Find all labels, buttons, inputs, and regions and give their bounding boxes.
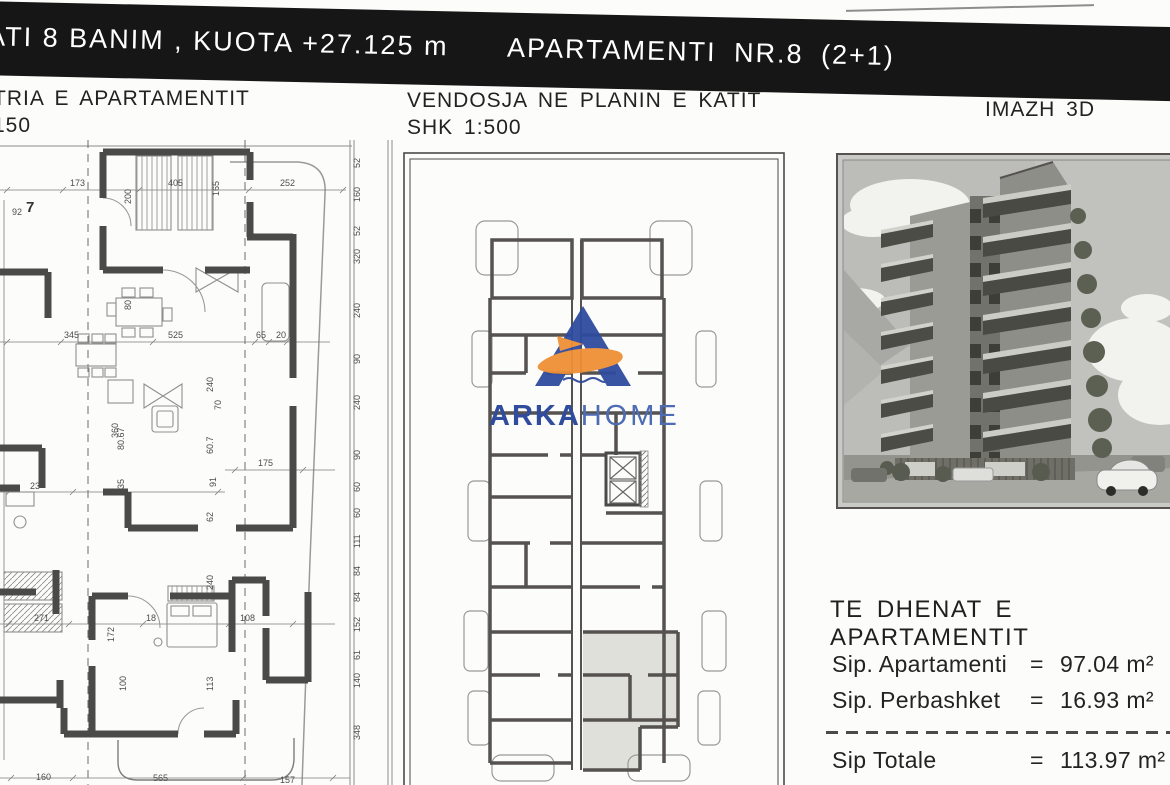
dimension-label: 152 — [352, 617, 362, 632]
dimension-label: 240 — [352, 395, 362, 410]
dimension-label: 240 — [205, 575, 215, 590]
dimension-label: 345 — [64, 330, 79, 340]
dimension-label: 100 — [118, 676, 128, 691]
detail-value: 97.04 m² — [1060, 651, 1154, 678]
parked-car-dark — [851, 468, 887, 482]
dimension-label: 52 — [352, 158, 362, 168]
dimension-label: 20 — [276, 330, 286, 340]
logo-a-shape — [535, 306, 631, 386]
dimension-lines — [0, 187, 350, 781]
dimension-labels: 1734052529220016534552565208024036070175… — [12, 158, 362, 785]
dimension-label: 111 — [352, 534, 362, 548]
dimension-label: 405 — [168, 178, 183, 188]
dimension-label: 271 — [34, 613, 49, 623]
dimension-label: 160 — [36, 772, 51, 782]
dimension-label: 140 — [352, 673, 362, 688]
dimension-label: 157 — [280, 775, 295, 785]
dimension-label: 80 — [123, 300, 133, 310]
dimension-label: 173 — [70, 178, 85, 188]
logo-text-home: HOME — [581, 400, 680, 432]
dimension-label: 84 — [352, 566, 362, 576]
dimension-label: 18 — [146, 613, 156, 623]
location-section-title: VENDOSJA NE PLANIN E KATIT SHK 1:500 — [407, 87, 761, 141]
dimension-label: 60.7 — [205, 436, 215, 454]
dimension-label: 172 — [106, 627, 116, 642]
dimension-label: 90 — [352, 450, 362, 460]
parked-car-light — [953, 468, 993, 481]
detail-value: 113.97 m² — [1060, 747, 1165, 774]
equals-sign: = — [1030, 651, 1044, 678]
detail-row-apartment: Sip. Apartamenti = 97.04 m² — [832, 651, 1170, 679]
dashed-grid-lines — [88, 140, 245, 785]
detail-row-total: Sip Totale = 113.97 m² — [832, 747, 1170, 775]
render-scene — [835, 161, 1170, 501]
detail-row-common: Sip. Perbashket = 16.93 m² — [832, 687, 1170, 715]
dimension-label: 135 — [116, 479, 126, 494]
dimension-label: 200 — [123, 189, 133, 204]
storey-key-plan — [400, 145, 792, 785]
dimension-label: 175 — [258, 458, 273, 468]
furniture — [4, 156, 294, 780]
dimension-label: 240 — [205, 377, 215, 392]
scan-artifact-line — [846, 4, 1094, 12]
dimension-label: 108 — [240, 613, 255, 623]
detail-label: Sip Totale — [832, 747, 937, 774]
logo-wave-icon — [563, 378, 609, 382]
dimension-label: 60 — [352, 482, 362, 492]
dimension-label: 348 — [352, 725, 362, 740]
dimension-label: 92 — [12, 207, 22, 217]
dimension-label: 165 — [211, 181, 221, 196]
dimension-label: 525 — [168, 330, 183, 340]
header-left-text: ATI 8 BANIM , KUOTA +27.125 m — [0, 21, 449, 62]
dimension-label: 70 — [213, 400, 223, 410]
arkahome-logo-text: ARKAHOME — [489, 400, 680, 433]
dimension-label: 61 — [352, 650, 362, 660]
equals-sign: = — [1030, 687, 1044, 714]
equals-sign: = — [1030, 747, 1044, 774]
dimension-label: 60 — [352, 508, 362, 518]
apartment-floor-plan: 7 17340525292200165345525652080240360701… — [0, 140, 396, 785]
dimension-label: 65 — [256, 330, 266, 340]
dimension-label: 84 — [352, 592, 362, 602]
scanned-apartment-sheet: ATI 8 BANIM , KUOTA +27.125 m APARTAMENT… — [0, 0, 1170, 785]
dimension-label: 91 — [208, 477, 218, 487]
header-right-text: APARTAMENTI NR.8 (2+1) — [507, 33, 895, 72]
render-section-title: IMAZH 3D — [985, 96, 1095, 123]
dimension-label: 240 — [352, 303, 362, 318]
building-3d-render — [835, 150, 1170, 512]
detail-label: Sip. Apartamenti — [832, 651, 1007, 678]
plan-title: TRIA E APARTAMENTIT — [0, 85, 250, 112]
plan-scale: 150 — [0, 112, 250, 139]
walls — [0, 152, 308, 734]
location-title: VENDOSJA NE PLANIN E KATIT — [407, 87, 761, 114]
dimension-label: 90 — [352, 354, 362, 364]
arkahome-logo-icon — [533, 304, 633, 392]
dimension-label: 62 — [205, 512, 215, 522]
detail-value: 16.93 m² — [1060, 687, 1154, 714]
elevator-shaft — [606, 451, 648, 507]
plan-section-title: TRIA E APARTAMENTIT 150 — [0, 85, 250, 139]
dimension-label: 23 — [30, 481, 40, 491]
dimension-label: 320 — [352, 249, 362, 264]
detail-label: Sip. Perbashket — [832, 687, 1000, 714]
location-scale: SHK 1:500 — [407, 114, 761, 141]
details-title: TE DHENAT E APARTAMENTIT — [830, 596, 1170, 652]
dimension-label: 565 — [153, 773, 168, 783]
dimension-label: 80.67 — [116, 427, 126, 450]
total-divider — [826, 731, 1170, 734]
site-boundary-line — [230, 162, 325, 785]
dimension-label: 113 — [205, 677, 215, 691]
dimension-label: 252 — [280, 178, 295, 188]
room-number-label: 7 — [26, 199, 34, 216]
dimension-label: 52 — [352, 226, 362, 236]
dimension-label: 160 — [352, 187, 362, 202]
logo-text-arka: ARKA — [489, 400, 581, 432]
